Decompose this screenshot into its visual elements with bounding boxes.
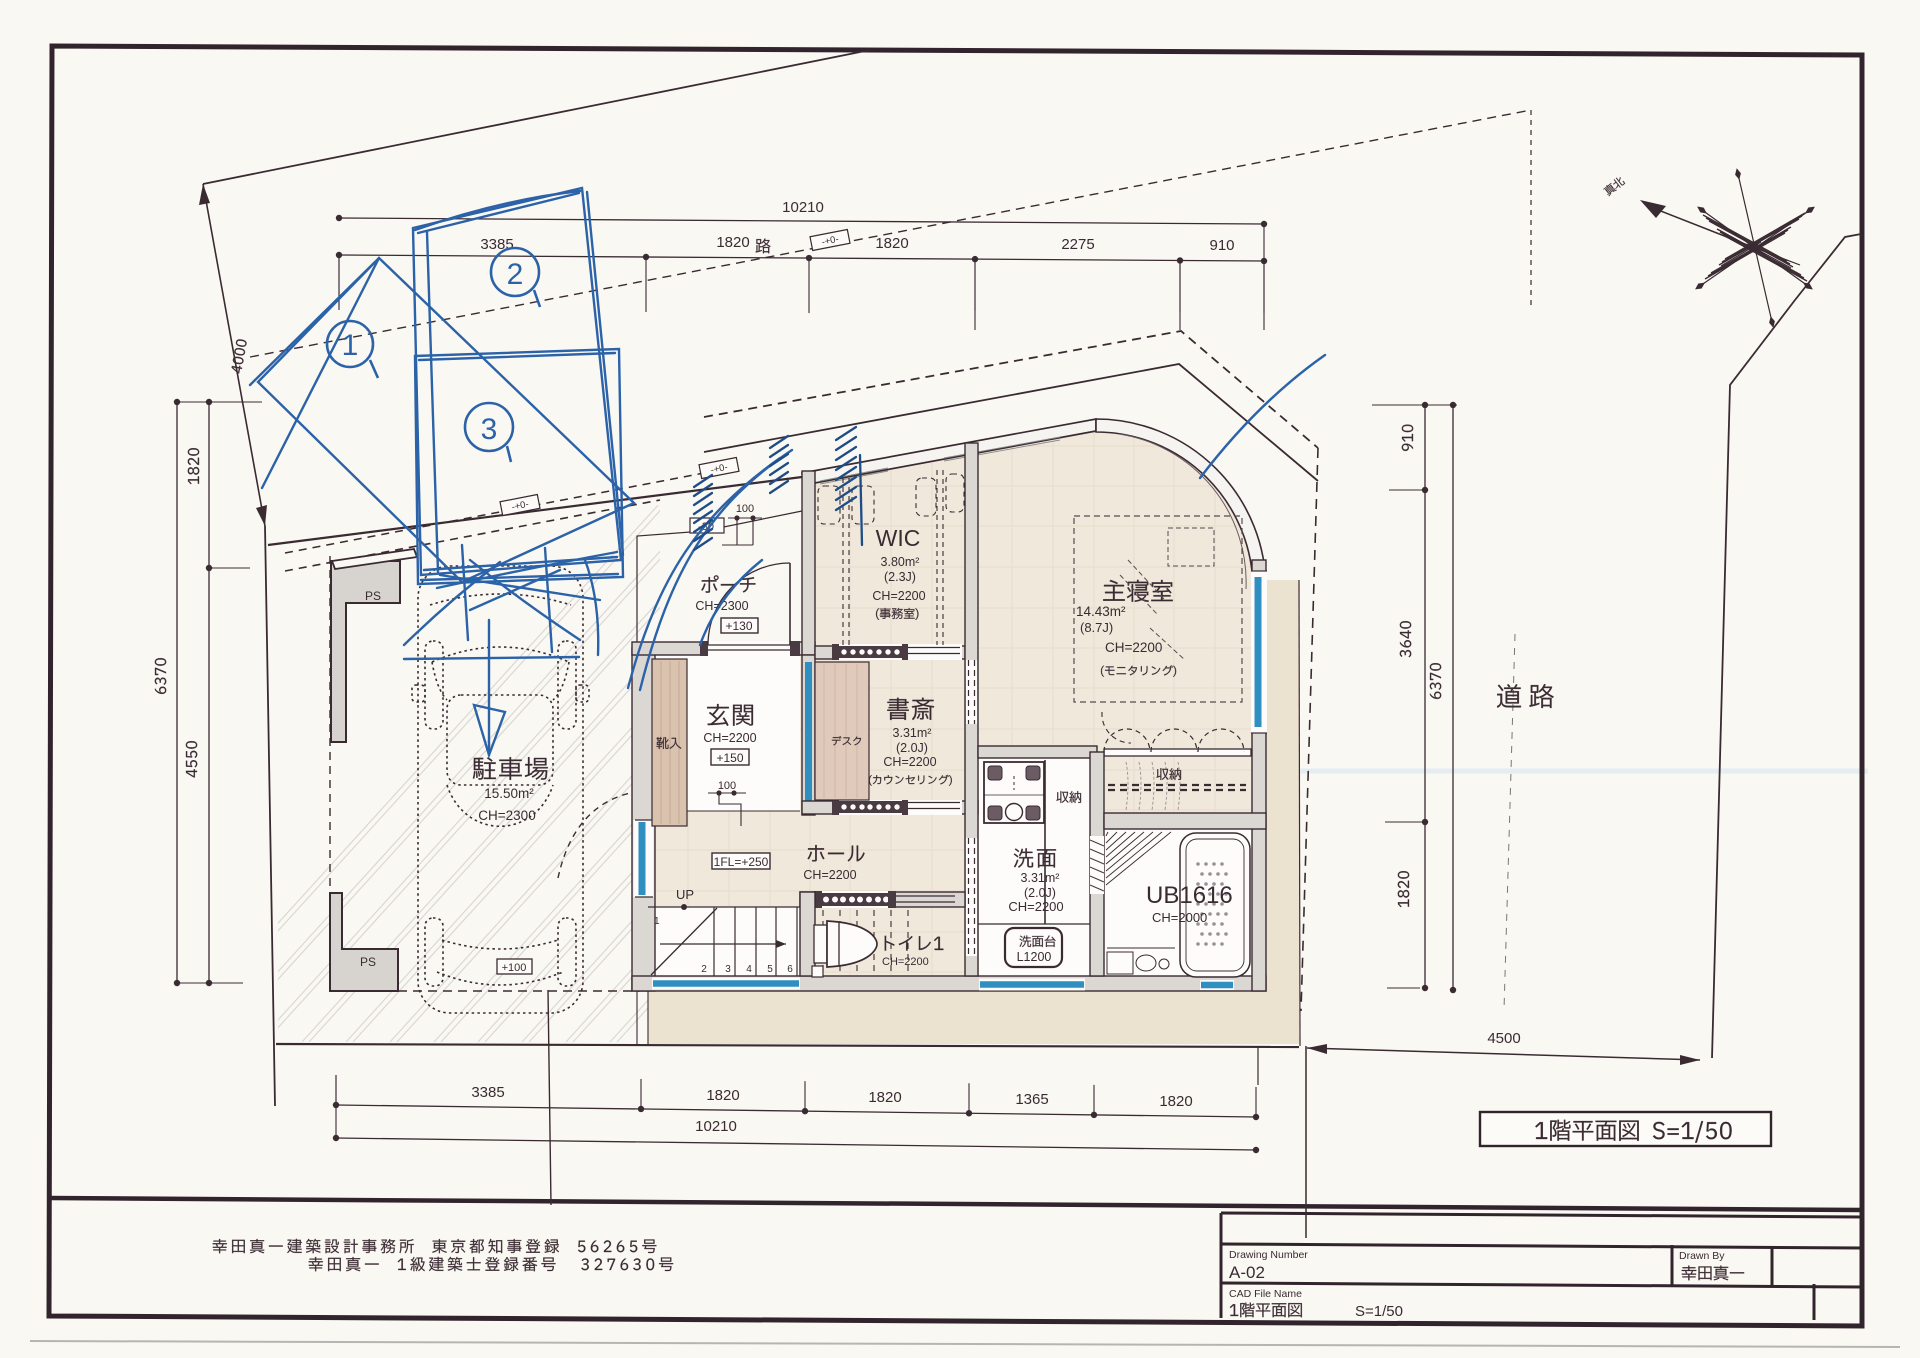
svg-text:2275: 2275 xyxy=(1061,236,1094,253)
svg-text:5: 5 xyxy=(767,964,773,975)
svg-text:(8.7J): (8.7J) xyxy=(1080,620,1113,635)
svg-text:1: 1 xyxy=(342,329,359,362)
svg-text:3.80m²: 3.80m² xyxy=(881,555,920,569)
svg-text:CH=2300: CH=2300 xyxy=(478,808,535,823)
svg-text:3.31m²: 3.31m² xyxy=(893,726,932,740)
svg-text:CH=2200: CH=2200 xyxy=(703,731,756,745)
svg-text:100: 100 xyxy=(736,503,754,515)
svg-text:CH=2000: CH=2000 xyxy=(1152,910,1207,925)
svg-text:3385: 3385 xyxy=(480,236,513,253)
svg-text:1FL=+250: 1FL=+250 xyxy=(714,855,769,869)
svg-text:10210: 10210 xyxy=(695,1118,737,1135)
svg-text:3.31m²: 3.31m² xyxy=(1021,871,1060,885)
svg-text:+130: +130 xyxy=(725,619,752,633)
svg-text:4500: 4500 xyxy=(1487,1030,1520,1047)
svg-text:CH=2200: CH=2200 xyxy=(1105,640,1162,655)
svg-text:(2.3J): (2.3J) xyxy=(884,570,916,584)
svg-text:6: 6 xyxy=(787,964,793,975)
svg-text:100: 100 xyxy=(718,780,736,792)
svg-text:1365: 1365 xyxy=(1015,1091,1048,1108)
svg-text:CH=2200: CH=2200 xyxy=(883,755,936,769)
svg-text:S=1/50: S=1/50 xyxy=(1355,1303,1403,1320)
svg-text:3: 3 xyxy=(725,964,731,975)
svg-text:WIC: WIC xyxy=(876,525,921,551)
svg-text:CH=2200: CH=2200 xyxy=(882,956,929,968)
svg-text:(2.0J): (2.0J) xyxy=(1024,886,1056,900)
svg-text:2: 2 xyxy=(701,964,707,975)
svg-text:1820: 1820 xyxy=(1159,1093,1192,1110)
svg-text:14.43m²: 14.43m² xyxy=(1076,604,1126,619)
svg-text:1820: 1820 xyxy=(716,234,749,251)
svg-text:+150: +150 xyxy=(716,751,743,765)
svg-text:L1200: L1200 xyxy=(1017,950,1052,964)
svg-text:CH=2200: CH=2200 xyxy=(803,868,856,882)
svg-text:1820: 1820 xyxy=(706,1087,739,1104)
svg-text:CH=2200: CH=2200 xyxy=(872,589,925,603)
svg-text:910: 910 xyxy=(1209,237,1234,254)
svg-text:15.50m²: 15.50m² xyxy=(484,786,534,801)
svg-text:CH=2200: CH=2200 xyxy=(1008,899,1063,914)
svg-text:1820: 1820 xyxy=(875,235,908,252)
svg-text:10210: 10210 xyxy=(782,199,824,216)
svg-text:3: 3 xyxy=(481,413,498,446)
svg-text:A-02: A-02 xyxy=(1229,1263,1265,1282)
svg-text:(2.0J): (2.0J) xyxy=(896,741,928,755)
svg-text:UP: UP xyxy=(676,887,694,902)
svg-text:1: 1 xyxy=(654,916,660,927)
svg-text:PS: PS xyxy=(365,589,381,603)
svg-text:+100: +100 xyxy=(502,962,527,974)
svg-text:Drawing Number: Drawing Number xyxy=(1229,1249,1308,1261)
svg-text:PS: PS xyxy=(360,955,376,969)
svg-text:2: 2 xyxy=(507,258,524,291)
svg-text:UB1616: UB1616 xyxy=(1146,882,1233,909)
svg-text:Drawn By: Drawn By xyxy=(1679,1250,1725,1262)
svg-text:4: 4 xyxy=(746,964,752,975)
svg-text:3385: 3385 xyxy=(471,1084,504,1101)
svg-text:CAD File Name: CAD File Name xyxy=(1229,1288,1302,1300)
svg-text:1820: 1820 xyxy=(868,1089,901,1106)
